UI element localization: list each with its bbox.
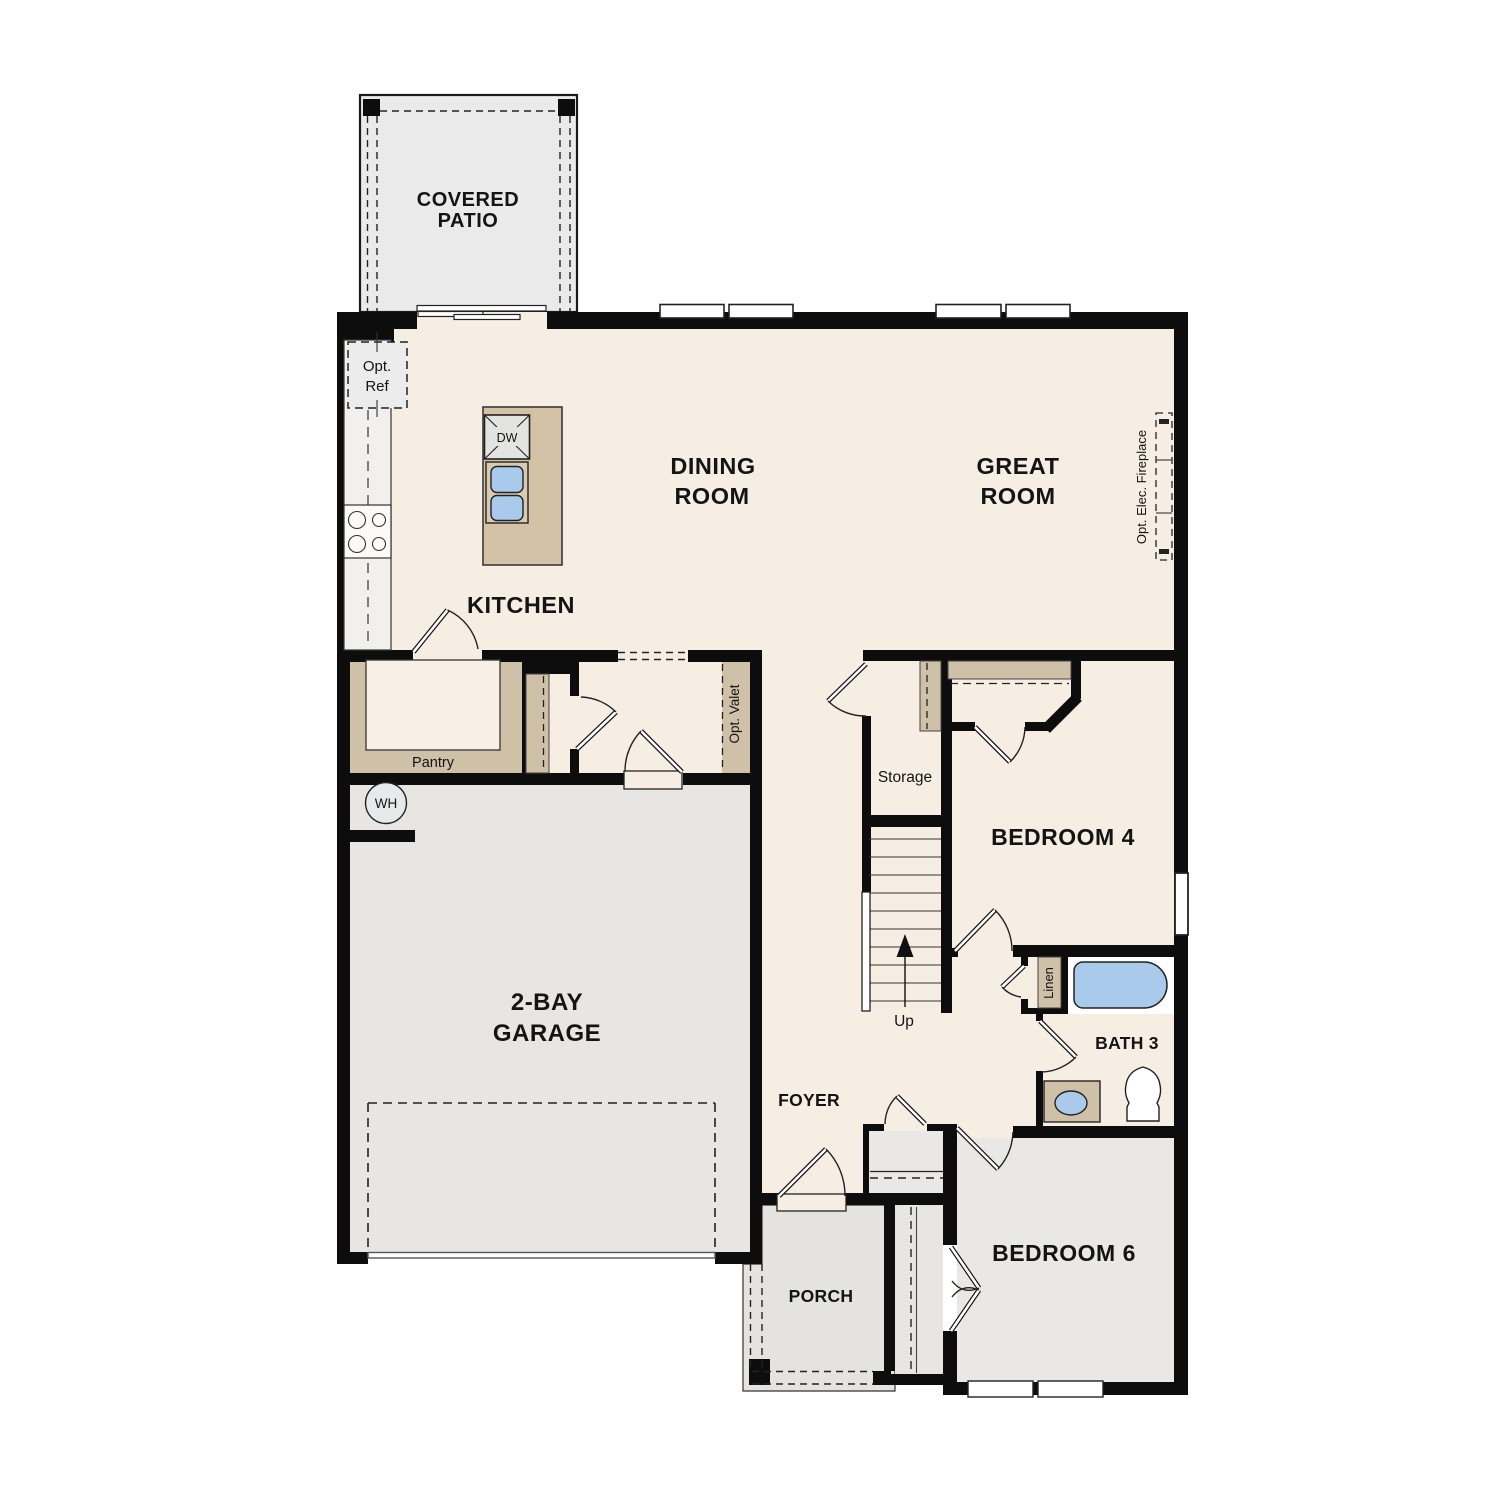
svg-text:BATH 3: BATH 3 xyxy=(1095,1033,1159,1053)
svg-text:PORCH: PORCH xyxy=(789,1286,854,1306)
svg-text:Up: Up xyxy=(894,1013,914,1030)
svg-text:Storage: Storage xyxy=(878,769,932,786)
svg-text:BEDROOM 4: BEDROOM 4 xyxy=(991,824,1135,850)
svg-text:Opt. Elec. Fireplace: Opt. Elec. Fireplace xyxy=(1134,430,1149,544)
svg-text:GREAT: GREAT xyxy=(976,453,1059,479)
svg-text:DW: DW xyxy=(497,431,518,445)
svg-text:2-BAY: 2-BAY xyxy=(511,989,583,1016)
svg-text:BEDROOM 6: BEDROOM 6 xyxy=(992,1240,1136,1266)
svg-text:Pantry: Pantry xyxy=(412,755,455,771)
svg-text:PATIO: PATIO xyxy=(438,210,499,232)
svg-text:Ref: Ref xyxy=(365,378,389,395)
svg-text:COVERED: COVERED xyxy=(417,189,519,211)
svg-text:Linen: Linen xyxy=(1041,967,1056,999)
svg-text:KITCHEN: KITCHEN xyxy=(467,592,575,618)
svg-text:ROOM: ROOM xyxy=(980,483,1055,509)
svg-text:FOYER: FOYER xyxy=(778,1090,840,1110)
svg-text:GARAGE: GARAGE xyxy=(493,1020,601,1047)
svg-text:Opt.: Opt. xyxy=(363,358,391,375)
svg-text:DINING: DINING xyxy=(670,453,755,479)
svg-text:Opt. Valet: Opt. Valet xyxy=(727,684,742,743)
svg-text:WH: WH xyxy=(375,796,398,811)
svg-text:ROOM: ROOM xyxy=(674,483,749,509)
